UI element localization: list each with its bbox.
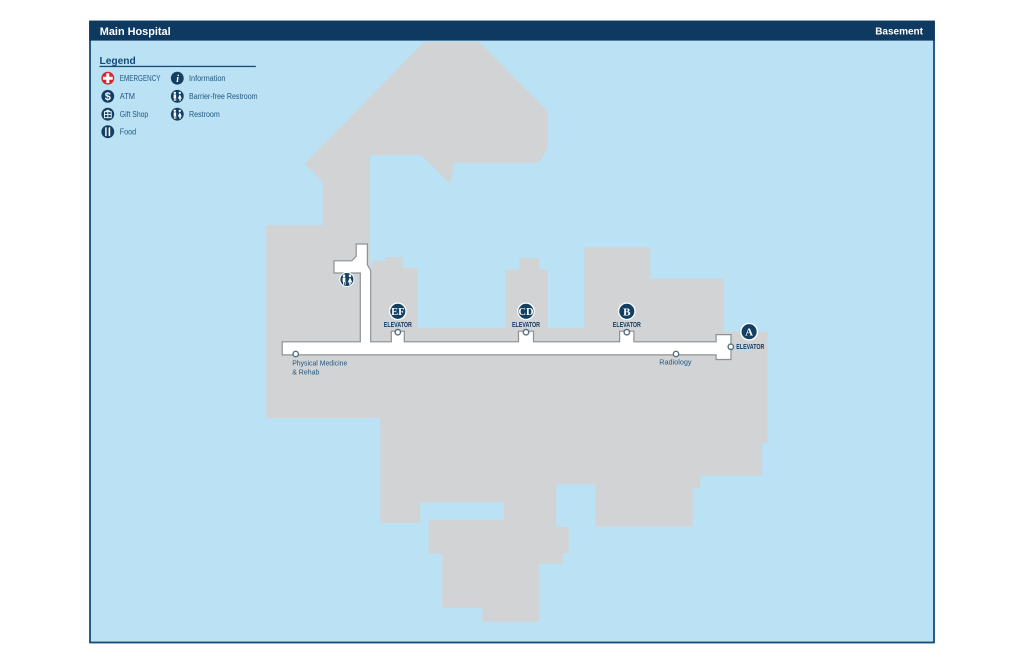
svg-text:A: A <box>745 327 753 339</box>
svg-text:$: $ <box>105 91 111 103</box>
svg-text:ELEVATOR: ELEVATOR <box>613 320 642 329</box>
svg-text:Information: Information <box>189 74 226 83</box>
svg-text:Basement: Basement <box>875 27 923 38</box>
svg-text:Gift Shop: Gift Shop <box>120 110 149 119</box>
svg-text:Barrier-free Restroom: Barrier-free Restroom <box>189 92 258 101</box>
svg-text:Main Hospital: Main Hospital <box>100 26 171 38</box>
svg-text:ELEVATOR: ELEVATOR <box>512 320 541 329</box>
svg-text:Radiology: Radiology <box>659 357 692 366</box>
svg-text:ELEVATOR: ELEVATOR <box>384 320 413 329</box>
svg-text:EMERGENCY: EMERGENCY <box>120 74 161 83</box>
svg-text:ELEVATOR: ELEVATOR <box>736 342 765 351</box>
svg-text:Food: Food <box>120 128 136 137</box>
svg-text:& Rehab: & Rehab <box>292 368 319 377</box>
svg-text:CD: CD <box>518 307 534 318</box>
svg-text:ATM: ATM <box>120 92 135 101</box>
svg-text:EF: EF <box>391 307 404 318</box>
svg-text:B: B <box>623 306 631 318</box>
svg-text:Legend: Legend <box>100 56 136 67</box>
svg-text:i: i <box>176 74 179 85</box>
svg-text:Physical Medicine: Physical Medicine <box>292 358 347 367</box>
svg-text:Restroom: Restroom <box>189 110 220 119</box>
